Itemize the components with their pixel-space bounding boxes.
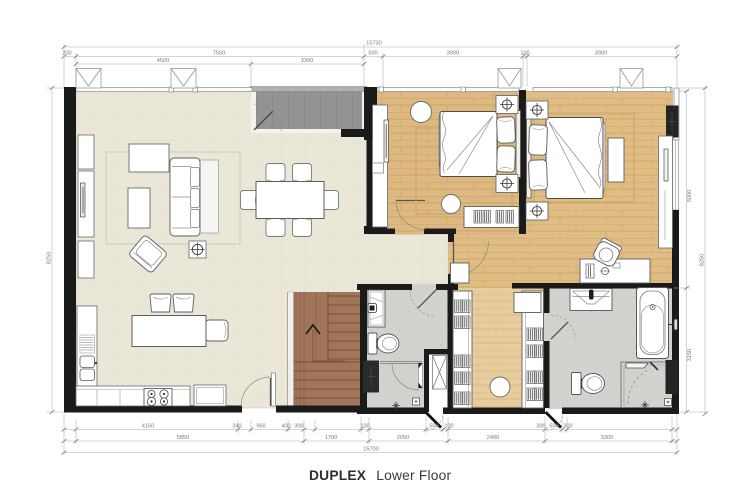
svg-text:300: 300 — [563, 424, 572, 430]
svg-text:100: 100 — [360, 424, 369, 430]
svg-text:4150: 4150 — [142, 424, 154, 430]
svg-text:500: 500 — [429, 424, 438, 430]
svg-text:3150: 3150 — [687, 349, 693, 361]
svg-text:8250: 8250 — [700, 254, 706, 266]
svg-text:DUPLEX Lower Floor: DUPLEX Lower Floor — [309, 468, 451, 483]
svg-text:340: 340 — [232, 424, 241, 430]
svg-text:3300: 3300 — [601, 435, 613, 441]
svg-text:960: 960 — [256, 424, 265, 430]
svg-text:300: 300 — [294, 424, 303, 430]
svg-text:500: 500 — [368, 51, 377, 57]
svg-text:3900: 3900 — [595, 51, 607, 57]
svg-text:200: 200 — [62, 51, 71, 57]
svg-text:3300: 3300 — [301, 58, 313, 64]
svg-text:15730: 15730 — [366, 41, 382, 47]
svg-text:3900: 3900 — [447, 51, 459, 57]
svg-text:100: 100 — [520, 51, 529, 57]
svg-text:300: 300 — [536, 424, 545, 430]
svg-text:2400: 2400 — [487, 435, 499, 441]
svg-text:7500: 7500 — [213, 51, 225, 57]
svg-text:4500: 4500 — [157, 58, 169, 64]
svg-text:8250: 8250 — [47, 252, 53, 264]
svg-text:5850: 5850 — [177, 435, 189, 441]
svg-text:5000: 5000 — [687, 190, 693, 202]
svg-text:1700: 1700 — [325, 435, 337, 441]
svg-text:15700: 15700 — [363, 447, 379, 453]
svg-text:500: 500 — [549, 424, 558, 430]
svg-text:100: 100 — [444, 424, 453, 430]
svg-text:2050: 2050 — [397, 435, 409, 441]
svg-text:400: 400 — [281, 424, 290, 430]
